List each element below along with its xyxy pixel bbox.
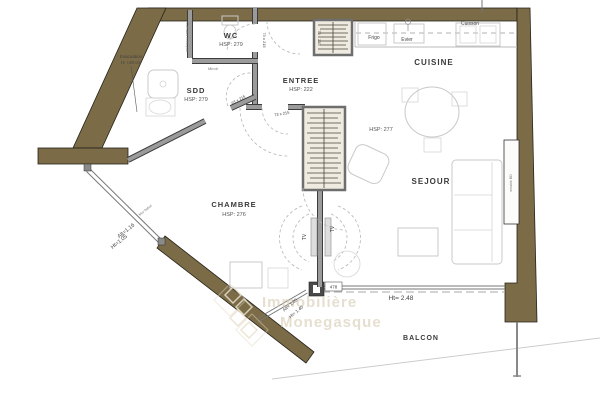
label-evacuation-2: H: +20 cm [121, 60, 142, 65]
room-label-entree: ENTREE [283, 76, 319, 85]
hsp-chambre: HSP: 276 [222, 212, 246, 218]
room-label-sdd: SDD [187, 86, 206, 95]
sofa [452, 160, 502, 264]
dim-bay-width: 478 [330, 285, 338, 290]
tv-unit-left [311, 218, 317, 256]
tv-arc-right [338, 206, 361, 270]
sdd-fixtures [146, 70, 178, 116]
hsp-cuisine: HSP: 277 [369, 127, 393, 133]
watermark-line1: Immobilière [262, 294, 357, 311]
tv-arc-right2 [331, 214, 347, 262]
partitions [128, 8, 320, 287]
dim-bay-height: Ht= 2.48 [389, 295, 414, 302]
armchair [345, 142, 391, 186]
tv-unit-right [325, 218, 331, 256]
room-label-cuisine: CUISINE [414, 58, 453, 67]
room-label-chambre: CHAMBRE [211, 200, 256, 209]
wall-topleft-diagonal [73, 8, 166, 148]
dim-chambre-door: 73 x 215 [274, 110, 291, 118]
room-label-wc: WC [224, 31, 239, 40]
tv-arc-left [279, 206, 302, 270]
hsp-entree: HSP: 222 [289, 87, 313, 93]
label-frigo: Frigo [368, 35, 380, 41]
room-label-sejour: SEJOUR [412, 177, 451, 186]
kitchen-table [402, 87, 467, 152]
closet-door-arc [303, 188, 345, 230]
coffee-table [398, 228, 438, 256]
label-tv-left: TV [302, 233, 308, 240]
entry-door-arc [267, 21, 300, 54]
label-evacuation-1: Evacuation [120, 54, 143, 59]
kitchen-counter [355, 20, 517, 48]
label-cumulus: Cumulus extra-plat [185, 22, 189, 51]
label-cuisson: Cuisson [461, 21, 479, 27]
shower [148, 70, 178, 98]
dim-wc-door: 73 x 215 [262, 32, 267, 48]
label-meuble-bd: meuble BD [509, 174, 513, 192]
fridge [358, 23, 386, 45]
watermark-line2: Monegasque [280, 314, 382, 331]
hsp-wc: HSP: 279 [219, 42, 243, 48]
balcony-edge [272, 338, 600, 379]
label-miroir: Miroir [208, 66, 219, 71]
hsp-sdd: HSP: 279 [184, 97, 208, 103]
floor-plan-svg: Immobilière Monegasque WC HSP: 279 SDD H… [0, 0, 600, 412]
partition-lines [128, 8, 320, 287]
label-evier: Evier [401, 37, 413, 43]
window-cap [84, 164, 91, 171]
watermark: Immobilière Monegasque [214, 284, 382, 346]
big-closet [303, 107, 345, 190]
label-mur-bahut: Mur bahut [138, 204, 153, 217]
room-label-balcon: BALCON [403, 335, 439, 342]
label-tv-right: TV [330, 225, 336, 232]
floor-plan: Immobilière Monegasque WC HSP: 279 SDD H… [0, 0, 600, 412]
dim-entry-door: 73 x 215 [317, 30, 322, 46]
wall-left-band [38, 148, 128, 164]
window-cap [158, 238, 165, 245]
